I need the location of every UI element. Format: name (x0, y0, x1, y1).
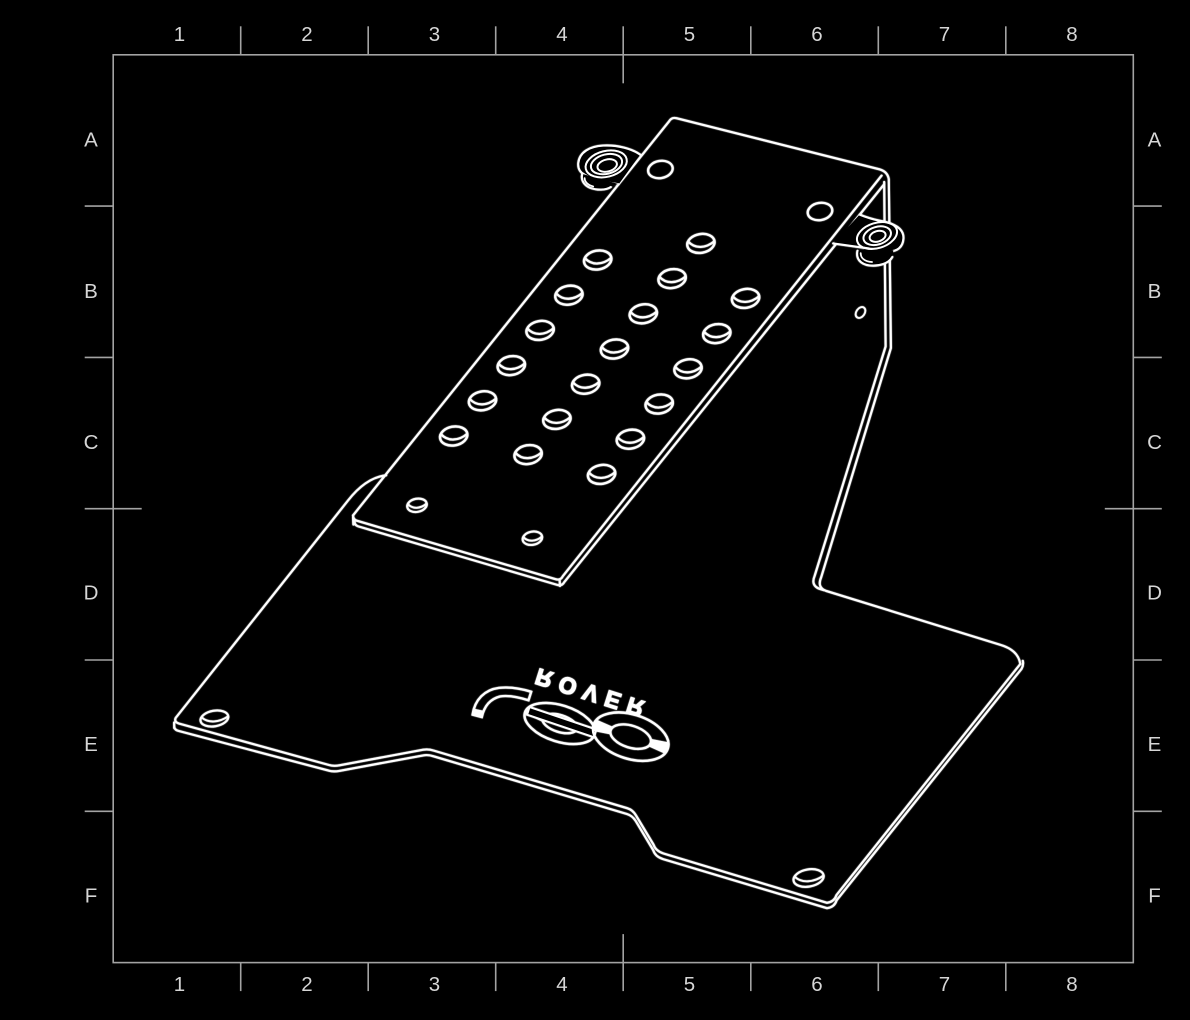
svg-text:6: 6 (811, 973, 822, 996)
svg-text:3: 3 (429, 973, 440, 996)
svg-text:C: C (84, 431, 99, 454)
svg-text:D: D (1147, 581, 1162, 604)
svg-text:C: C (1147, 431, 1162, 454)
svg-text:4: 4 (556, 973, 567, 996)
svg-text:D: D (84, 581, 99, 604)
svg-text:4: 4 (556, 23, 567, 46)
svg-text:5: 5 (684, 973, 695, 996)
svg-text:8: 8 (1066, 23, 1077, 46)
svg-text:A: A (1148, 128, 1162, 151)
svg-text:2: 2 (301, 23, 312, 46)
svg-text:7: 7 (939, 973, 950, 996)
svg-text:1: 1 (174, 23, 185, 46)
svg-text:2: 2 (301, 973, 312, 996)
svg-text:E: E (1148, 733, 1162, 756)
svg-text:A: A (84, 128, 98, 151)
svg-text:7: 7 (939, 23, 950, 46)
svg-text:F: F (85, 884, 98, 907)
svg-text:8: 8 (1066, 973, 1077, 996)
svg-text:3: 3 (429, 23, 440, 46)
svg-text:5: 5 (684, 23, 695, 46)
svg-text:E: E (84, 733, 98, 756)
svg-text:6: 6 (811, 23, 822, 46)
svg-text:1: 1 (174, 973, 185, 996)
svg-text:F: F (1148, 884, 1161, 907)
svg-text:B: B (84, 280, 98, 303)
svg-text:B: B (1148, 280, 1162, 303)
